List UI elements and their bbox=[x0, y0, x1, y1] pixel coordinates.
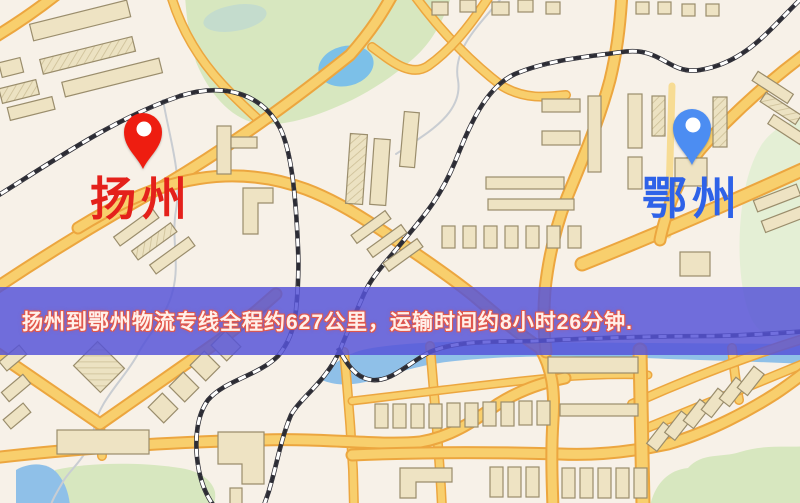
map-canvas[interactable] bbox=[0, 0, 800, 503]
origin-label: 扬州 bbox=[90, 177, 192, 223]
map-screenshot: 扬州 鄂州 扬州到鄂州物流专线全程约627公里，运输时间约8小时26分钟. bbox=[0, 0, 800, 503]
origin-pin-icon[interactable] bbox=[119, 103, 167, 169]
destination-pin-icon[interactable] bbox=[668, 99, 716, 165]
route-info-banner: 扬州到鄂州物流专线全程约627公里，运输时间约8小时26分钟. bbox=[0, 287, 800, 355]
destination-label: 鄂州 bbox=[642, 177, 742, 222]
route-info-text: 扬州到鄂州物流专线全程约627公里，运输时间约8小时26分钟. bbox=[22, 306, 633, 336]
buildings bbox=[0, 0, 800, 503]
